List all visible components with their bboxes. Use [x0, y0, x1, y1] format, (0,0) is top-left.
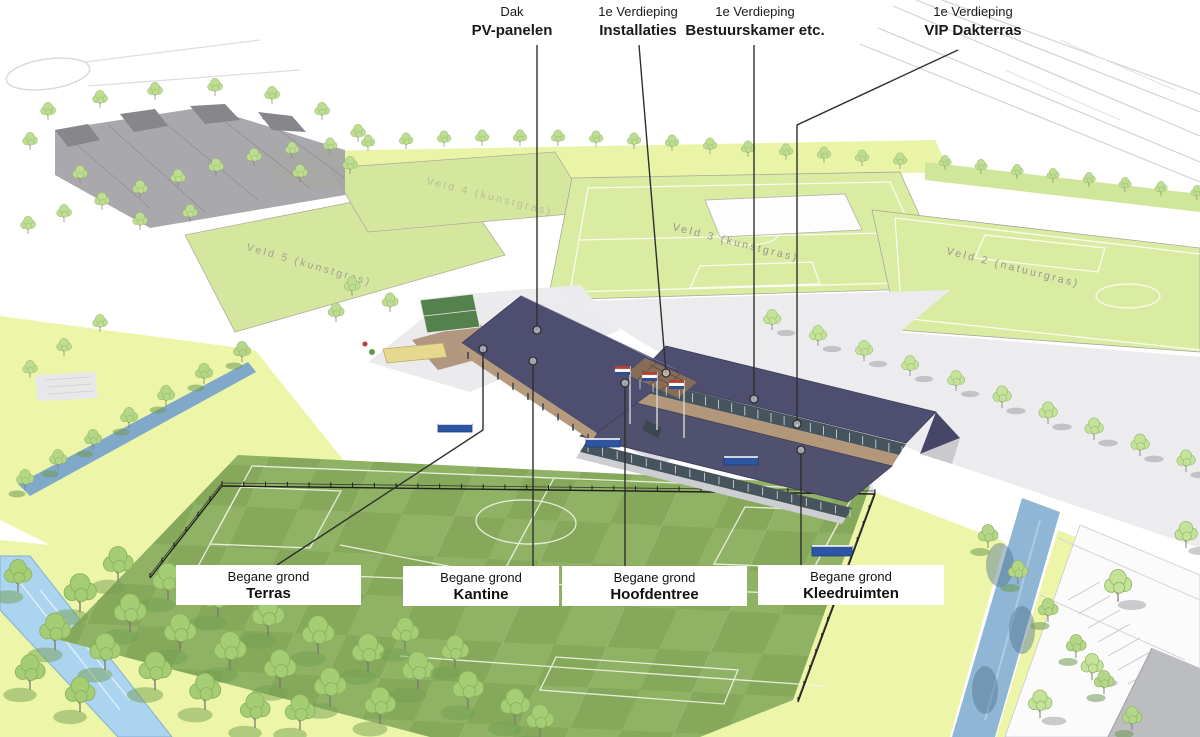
annotation-kleedruimten: Begane grond Kleedruimten: [758, 565, 944, 605]
annotation-bestuurskamer: 1e Verdieping Bestuurskamer etc.: [685, 4, 824, 40]
scene-svg: Veld 5 (kunstgras) Veld 4 (kunstgras) Ve…: [0, 0, 1200, 737]
annotation-installaties: 1e Verdieping Installaties: [598, 4, 678, 40]
annotation-line1: 1e Verdieping: [598, 4, 678, 21]
annotation-line2: Installaties: [598, 21, 678, 41]
site-plan-rendering: Veld 5 (kunstgras) Veld 4 (kunstgras) Ve…: [0, 0, 1200, 737]
annotation-line2: VIP Dakterras: [924, 21, 1021, 41]
annotation-line2: Bestuurskamer etc.: [685, 21, 824, 41]
annotation-line1: Begane grond: [403, 570, 559, 586]
mini-court: [420, 294, 480, 333]
annotation-vip-dakterras: 1e Verdieping VIP Dakterras: [924, 4, 1021, 40]
annotation-terras: Begane grond Terras: [176, 565, 361, 605]
annotation-line2: PV-panelen: [472, 21, 553, 41]
annotation-line2: Kleedruimten: [758, 585, 944, 604]
annotation-line2: Hoofdentree: [562, 586, 747, 605]
annotation-line1: 1e Verdieping: [924, 4, 1021, 21]
annotation-kantine: Begane grond Kantine: [403, 566, 559, 606]
annotation-line2: Kantine: [403, 586, 559, 605]
annotation-dak-pv-panelen: Dak PV-panelen: [472, 4, 553, 40]
annotation-line1: Begane grond: [758, 569, 944, 585]
annotation-line1: Begane grond: [176, 569, 361, 585]
annotation-line1: 1e Verdieping: [685, 4, 824, 21]
annotation-line1: Dak: [472, 4, 553, 21]
annotation-line2: Terras: [176, 585, 361, 604]
annotation-hoofdentree: Begane grond Hoofdentree: [562, 566, 747, 606]
annotation-line1: Begane grond: [562, 570, 747, 586]
